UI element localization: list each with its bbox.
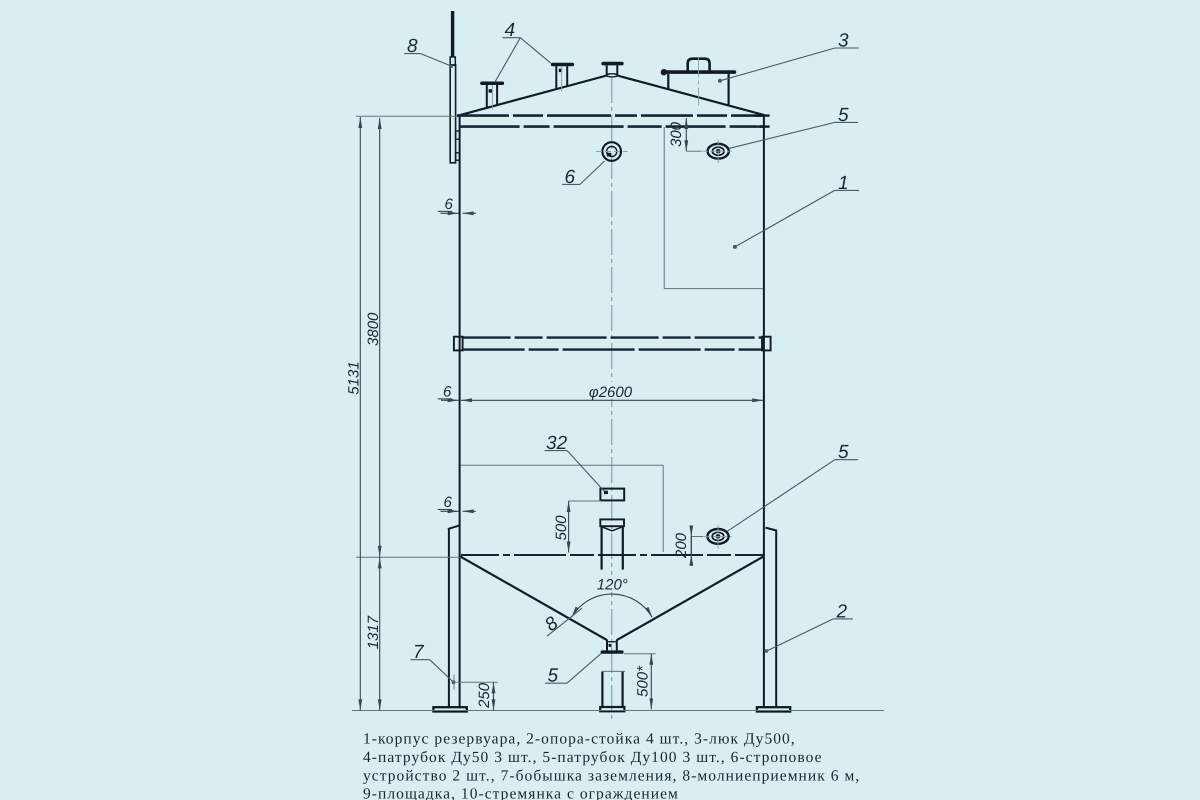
svg-text:φ2600: φ2600 (589, 384, 633, 401)
svg-text:120°: 120° (597, 577, 628, 594)
svg-text:8: 8 (407, 36, 418, 57)
svg-text:500: 500 (553, 515, 570, 541)
svg-text:5: 5 (548, 666, 559, 687)
svg-text:1317: 1317 (365, 615, 382, 649)
svg-text:9-площадка, 10-стремянка с огр: 9-площадка, 10-стремянка с ограждением (363, 785, 679, 800)
svg-text:6: 6 (445, 196, 454, 213)
svg-text:6: 6 (444, 494, 453, 511)
svg-text:3800: 3800 (365, 312, 382, 346)
svg-text:1-корпус резервуара, 2-опора-с: 1-корпус резервуара, 2-опора-стойка 4 шт… (363, 731, 796, 748)
svg-text:5: 5 (838, 442, 849, 463)
svg-text:200: 200 (673, 532, 690, 559)
svg-text:5: 5 (838, 105, 849, 126)
svg-text:500*: 500* (635, 665, 652, 697)
svg-text:устройство 2 шт., 7-бобышка за: устройство 2 шт., 7-бобышка заземления, … (363, 767, 860, 784)
svg-text:6: 6 (443, 384, 452, 401)
svg-text:1: 1 (838, 173, 849, 194)
svg-text:7: 7 (413, 642, 425, 663)
svg-text:4-патрубок Ду50 3 шт., 5-патру: 4-патрубок Ду50 3 шт., 5-патрубок Ду100 … (363, 749, 823, 766)
svg-text:4: 4 (505, 20, 516, 41)
svg-text:3: 3 (838, 31, 849, 52)
svg-text:300: 300 (668, 121, 685, 147)
svg-text:2: 2 (836, 602, 848, 623)
svg-text:250: 250 (476, 682, 493, 709)
svg-text:32: 32 (546, 433, 568, 454)
svg-text:5131: 5131 (346, 361, 363, 394)
svg-text:6: 6 (565, 167, 576, 188)
